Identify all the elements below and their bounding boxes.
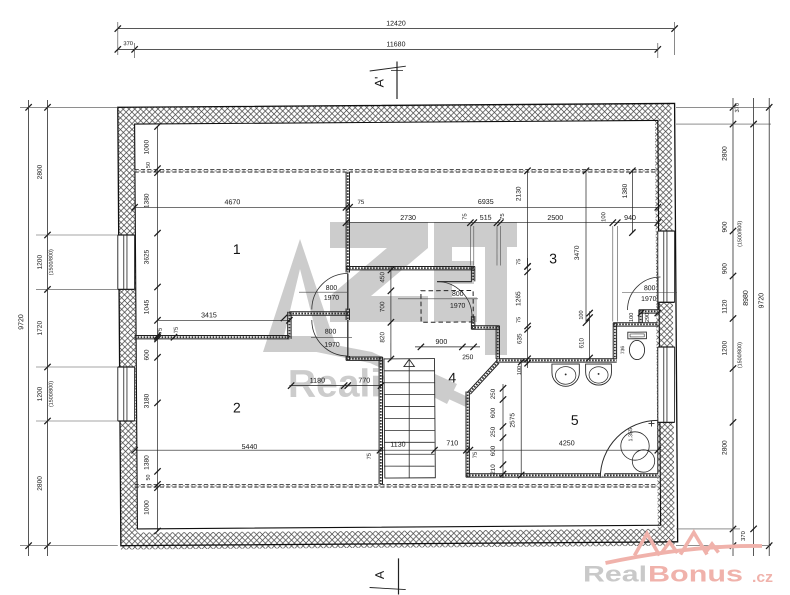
svg-text:2: 2: [233, 399, 241, 415]
svg-text:700: 700: [379, 301, 386, 312]
svg-text:770: 770: [358, 377, 370, 385]
svg-text:A: A: [373, 570, 387, 579]
svg-text:3415: 3415: [201, 311, 217, 319]
svg-text:1720: 1720: [37, 321, 44, 336]
svg-text:Bonus: Bonus: [648, 562, 743, 587]
svg-text:(1500/800): (1500/800): [49, 381, 55, 407]
svg-text:75: 75: [357, 199, 364, 206]
svg-text:(1500/800): (1500/800): [737, 342, 743, 368]
svg-text:1380: 1380: [622, 183, 629, 198]
svg-text:290: 290: [645, 313, 651, 322]
svg-text:710: 710: [446, 439, 458, 447]
svg-text:5440: 5440: [242, 443, 258, 451]
svg-text:1200: 1200: [37, 255, 44, 270]
svg-text:Real: Real: [583, 562, 647, 587]
svg-text:75: 75: [174, 327, 180, 333]
svg-text:600: 600: [490, 445, 497, 456]
svg-text:75: 75: [516, 317, 522, 323]
svg-text:75: 75: [367, 453, 373, 459]
svg-text:2800: 2800: [37, 476, 44, 491]
svg-text:900: 900: [722, 263, 729, 274]
svg-text:1970: 1970: [450, 303, 466, 310]
svg-text:1265: 1265: [515, 291, 522, 306]
svg-text:1120: 1120: [722, 299, 729, 314]
svg-text:4670: 4670: [224, 198, 240, 206]
svg-text:5: 5: [571, 412, 579, 428]
svg-text:370: 370: [123, 41, 133, 47]
svg-text:75: 75: [462, 213, 468, 219]
svg-text:9720: 9720: [18, 314, 25, 330]
svg-text:100: 100: [517, 366, 523, 375]
svg-text:3: 3: [549, 250, 557, 266]
svg-text:50: 50: [146, 474, 152, 480]
svg-text:2800: 2800: [722, 440, 729, 455]
svg-text:610: 610: [578, 337, 585, 348]
svg-text:800: 800: [325, 329, 337, 336]
svg-text:370: 370: [741, 531, 747, 541]
svg-text:900: 900: [435, 338, 447, 346]
svg-text:2575: 2575: [509, 413, 516, 428]
svg-text:75: 75: [516, 259, 522, 265]
svg-text:100: 100: [579, 310, 585, 319]
svg-text:75: 75: [473, 452, 479, 458]
svg-text:3180: 3180: [144, 393, 151, 408]
svg-text:1045: 1045: [144, 299, 151, 314]
svg-text:1000: 1000: [144, 140, 151, 155]
svg-text:.cz: .cz: [752, 569, 773, 586]
svg-text:635: 635: [516, 333, 523, 344]
svg-text:820: 820: [379, 332, 386, 343]
svg-text:75: 75: [500, 213, 506, 219]
svg-text:800: 800: [326, 285, 338, 292]
svg-text:2730: 2730: [400, 214, 416, 222]
svg-text:1380: 1380: [144, 455, 151, 470]
svg-text:1200: 1200: [722, 341, 729, 356]
svg-text:A': A': [372, 77, 386, 88]
svg-text:8980: 8980: [743, 290, 750, 306]
svg-text:11680: 11680: [386, 41, 405, 48]
svg-text:(1500/800): (1500/800): [49, 249, 55, 275]
svg-text:4: 4: [448, 369, 456, 385]
svg-text:940: 940: [624, 214, 636, 222]
svg-text:250: 250: [462, 354, 473, 361]
svg-text:210: 210: [490, 464, 497, 475]
svg-text:800: 800: [452, 291, 464, 298]
svg-text:6935: 6935: [478, 198, 494, 206]
svg-text:370: 370: [735, 103, 741, 113]
svg-text:600: 600: [490, 407, 497, 418]
svg-text:2500: 2500: [547, 214, 563, 222]
svg-text:(1500/800): (1500/800): [737, 221, 743, 247]
svg-text:3470: 3470: [574, 245, 581, 260]
svg-text:100: 100: [601, 212, 607, 222]
svg-text:1130: 1130: [390, 441, 405, 449]
svg-text:736: 736: [620, 346, 626, 355]
svg-text:1.355: 1.355: [628, 428, 634, 442]
svg-text:3625: 3625: [144, 249, 151, 264]
svg-text:800: 800: [644, 285, 656, 292]
svg-text:9720: 9720: [758, 293, 765, 309]
svg-text:1970: 1970: [324, 342, 340, 349]
svg-text:250: 250: [490, 388, 497, 399]
svg-text:4250: 4250: [559, 439, 575, 447]
svg-text:2800: 2800: [722, 146, 729, 161]
svg-text:1000: 1000: [144, 500, 151, 515]
svg-text:1: 1: [233, 241, 241, 257]
svg-text:1970: 1970: [324, 295, 340, 302]
svg-text:2130: 2130: [516, 186, 523, 201]
svg-text:1970: 1970: [641, 296, 657, 303]
svg-text:900: 900: [722, 221, 729, 232]
svg-text:1180: 1180: [310, 377, 325, 385]
svg-text:100: 100: [629, 313, 635, 322]
svg-text:1200: 1200: [37, 386, 44, 401]
svg-text:50: 50: [146, 162, 152, 168]
svg-text:250: 250: [490, 426, 497, 437]
svg-text:515: 515: [480, 214, 492, 222]
svg-text:450: 450: [379, 272, 386, 283]
svg-text:2800: 2800: [37, 164, 44, 179]
svg-text:600: 600: [144, 349, 151, 360]
svg-text:12420: 12420: [386, 21, 406, 28]
svg-text:1380: 1380: [144, 193, 151, 208]
svg-text:75: 75: [158, 328, 164, 334]
